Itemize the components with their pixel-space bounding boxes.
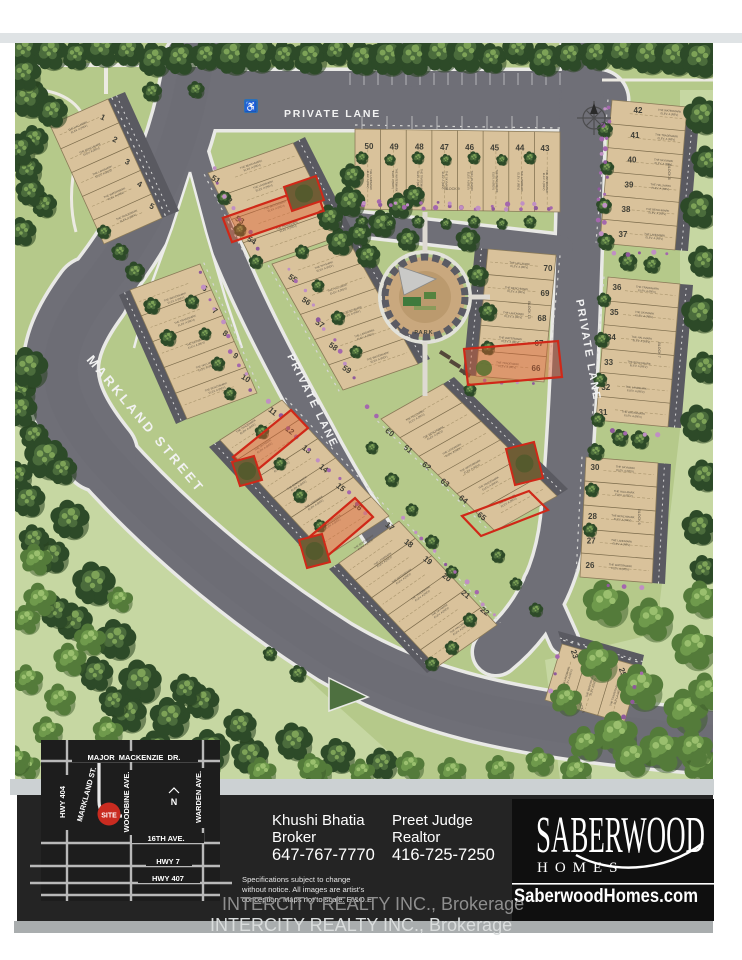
svg-text:THE WATERMARK: THE WATERMARK (545, 170, 549, 193)
svg-text:HWY 7: HWY 7 (156, 857, 180, 866)
svg-text:WARDEN AVE.: WARDEN AVE. (194, 771, 203, 823)
svg-text:48: 48 (415, 143, 424, 152)
svg-text:ELEV. A (REV): ELEV. A (REV) (517, 172, 521, 190)
svg-text:45: 45 (490, 143, 499, 152)
svg-text:35: 35 (610, 308, 619, 317)
svg-text:SABERWOOD: SABERWOOD (536, 807, 705, 864)
svg-text:THE HALLMARK: THE HALLMARK (470, 170, 474, 191)
svg-text:70: 70 (544, 264, 553, 273)
svg-text:44: 44 (515, 144, 524, 153)
svg-text:16TH AVE.: 16TH AVE. (147, 834, 184, 843)
svg-text:ELEV. A (REV): ELEV. A (REV) (391, 171, 395, 189)
svg-text:SaberwoodHomes.com: SaberwoodHomes.com (514, 885, 698, 907)
svg-text:HWY 404: HWY 404 (58, 785, 67, 818)
svg-text:69: 69 (541, 289, 550, 298)
svg-text:43: 43 (541, 144, 550, 153)
svg-text:30: 30 (591, 463, 600, 472)
svg-text:THE LANDMARK: THE LANDMARK (520, 171, 524, 192)
svg-text:38: 38 (622, 205, 631, 214)
svg-text:Specifications subject to chan: Specifications subject to change (242, 875, 351, 884)
svg-text:46: 46 (465, 143, 474, 152)
svg-text:Realtor: Realtor (392, 829, 440, 846)
svg-text:27: 27 (587, 537, 596, 546)
svg-text:68: 68 (538, 314, 547, 323)
svg-text:ELEV. A (REV): ELEV. A (REV) (366, 171, 370, 189)
svg-text:♿: ♿ (245, 100, 257, 113)
svg-text:INTERCITY REALTY INC., Brokera: INTERCITY REALTY INC., Brokerage (222, 894, 524, 914)
svg-text:50: 50 (365, 142, 374, 151)
svg-text:26: 26 (586, 561, 595, 570)
svg-text:MAJOR MACKENZIE DR.: MAJOR MACKENZIE DR. (88, 753, 181, 762)
svg-text:N: N (171, 797, 178, 807)
svg-text:THE LANDMARK: THE LANDMARK (369, 169, 373, 190)
svg-text:ELEV. A (REV): ELEV. A (REV) (542, 173, 546, 191)
svg-text:WOODBINE AVE.: WOODBINE AVE. (122, 772, 131, 833)
svg-text:BLOCK 8: BLOCK 8 (667, 164, 671, 179)
svg-text:ELEV. A (REV): ELEV. A (REV) (466, 172, 470, 190)
svg-text:36: 36 (613, 283, 622, 292)
svg-text:HWY 407: HWY 407 (152, 874, 184, 883)
svg-text:Broker: Broker (272, 829, 316, 846)
svg-text:40: 40 (628, 156, 637, 165)
svg-text:47: 47 (440, 143, 449, 152)
svg-text:416-725-7250: 416-725-7250 (392, 846, 495, 864)
svg-text:647-767-7770: 647-767-7770 (272, 846, 375, 864)
svg-text:ELEV. A (REV): ELEV. A (REV) (492, 172, 496, 190)
svg-text:PARK: PARK (414, 330, 433, 336)
svg-text:without notice. All images are: without notice. All images are artist’s (241, 885, 364, 894)
svg-text:33: 33 (604, 358, 613, 367)
svg-text:PRIVATE LANE: PRIVATE LANE (284, 108, 381, 120)
svg-text:41: 41 (631, 131, 640, 140)
svg-text:BLOCK 7: BLOCK 7 (657, 342, 661, 357)
svg-text:28: 28 (588, 512, 597, 521)
svg-text:ELEV. A (REV): ELEV. A (REV) (416, 171, 420, 189)
svg-text:49: 49 (390, 142, 399, 151)
svg-text:INTERCITY REALTY INC., Brokera: INTERCITY REALTY INC., Brokerage (210, 915, 512, 935)
svg-text:37: 37 (619, 230, 628, 239)
svg-text:39: 39 (625, 180, 634, 189)
svg-text:42: 42 (634, 106, 643, 115)
svg-text:Khushi Bhatia: Khushi Bhatia (272, 812, 365, 829)
svg-text:BLOCK 6: BLOCK 6 (637, 509, 641, 524)
svg-text:Preet Judge: Preet Judge (392, 812, 473, 829)
svg-text:SITE: SITE (101, 813, 117, 820)
svg-text:THE WATERMARK: THE WATERMARK (394, 168, 398, 191)
svg-text:BLOCK 9: BLOCK 9 (444, 187, 459, 191)
svg-text:HOMES: HOMES (537, 860, 625, 876)
svg-text:BLOCK 13: BLOCK 13 (527, 301, 531, 318)
svg-text:THE BENCHMARK: THE BENCHMARK (495, 169, 499, 193)
